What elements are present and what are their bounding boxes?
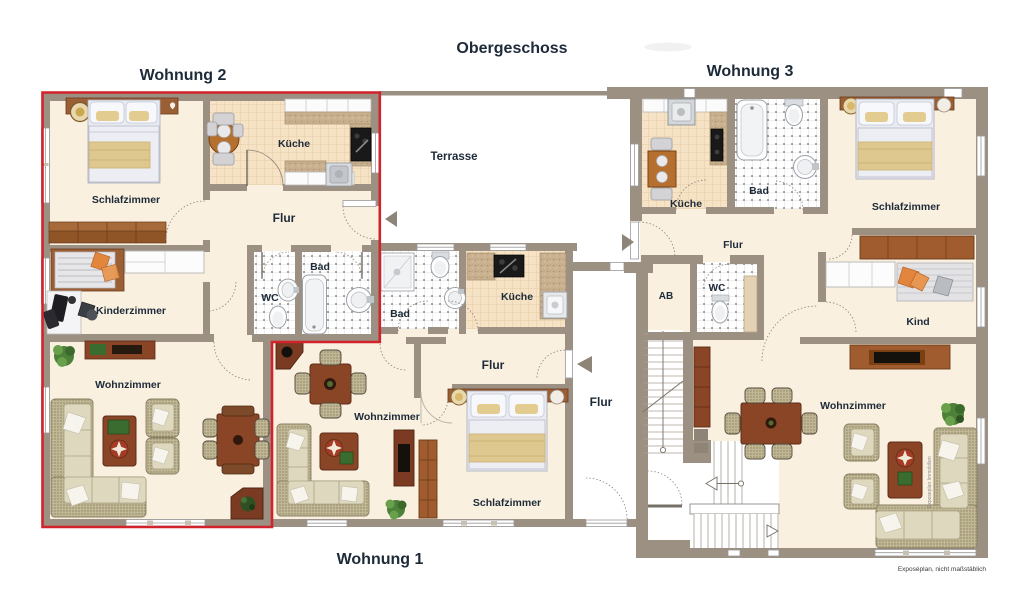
svg-text:Flur: Flur [590, 395, 613, 409]
svg-text:Exposeplan Immobilien: Exposeplan Immobilien [927, 456, 933, 508]
svg-text:Wohnzimmer: Wohnzimmer [354, 411, 420, 423]
svg-text:Schlafzimmer: Schlafzimmer [92, 194, 160, 206]
svg-text:Obergeschoss: Obergeschoss [456, 40, 567, 57]
svg-text:Flur: Flur [482, 358, 505, 372]
svg-text:Bad: Bad [390, 308, 410, 320]
svg-text:Schlafzimmer: Schlafzimmer [872, 201, 940, 213]
svg-text:WC: WC [709, 283, 726, 294]
svg-text:Terrasse: Terrasse [430, 151, 477, 163]
svg-text:Schlafzimmer: Schlafzimmer [473, 497, 541, 509]
svg-text:WC: WC [261, 292, 279, 304]
svg-text:Kind: Kind [906, 316, 929, 328]
svg-text:Flur: Flur [273, 211, 296, 225]
svg-text:AB: AB [659, 291, 673, 302]
svg-text:Wohnzimmer: Wohnzimmer [95, 379, 161, 391]
svg-text:Küche: Küche [278, 138, 310, 150]
svg-text:Kinderzimmer: Kinderzimmer [96, 305, 166, 317]
svg-text:Wohnung 3: Wohnung 3 [707, 63, 794, 80]
svg-text:Wohnung 1: Wohnung 1 [337, 551, 424, 568]
svg-text:Wohnzimmer: Wohnzimmer [820, 400, 886, 412]
svg-text:Küche: Küche [670, 198, 702, 210]
svg-text:Küche: Küche [501, 291, 533, 303]
svg-text:Exposéplan, nicht maßstäblich: Exposéplan, nicht maßstäblich [898, 566, 987, 573]
svg-text:Bad: Bad [749, 185, 769, 197]
svg-text:Bad: Bad [310, 261, 330, 273]
svg-text:Flur: Flur [723, 239, 743, 251]
svg-text:Wohnung 2: Wohnung 2 [140, 67, 227, 84]
